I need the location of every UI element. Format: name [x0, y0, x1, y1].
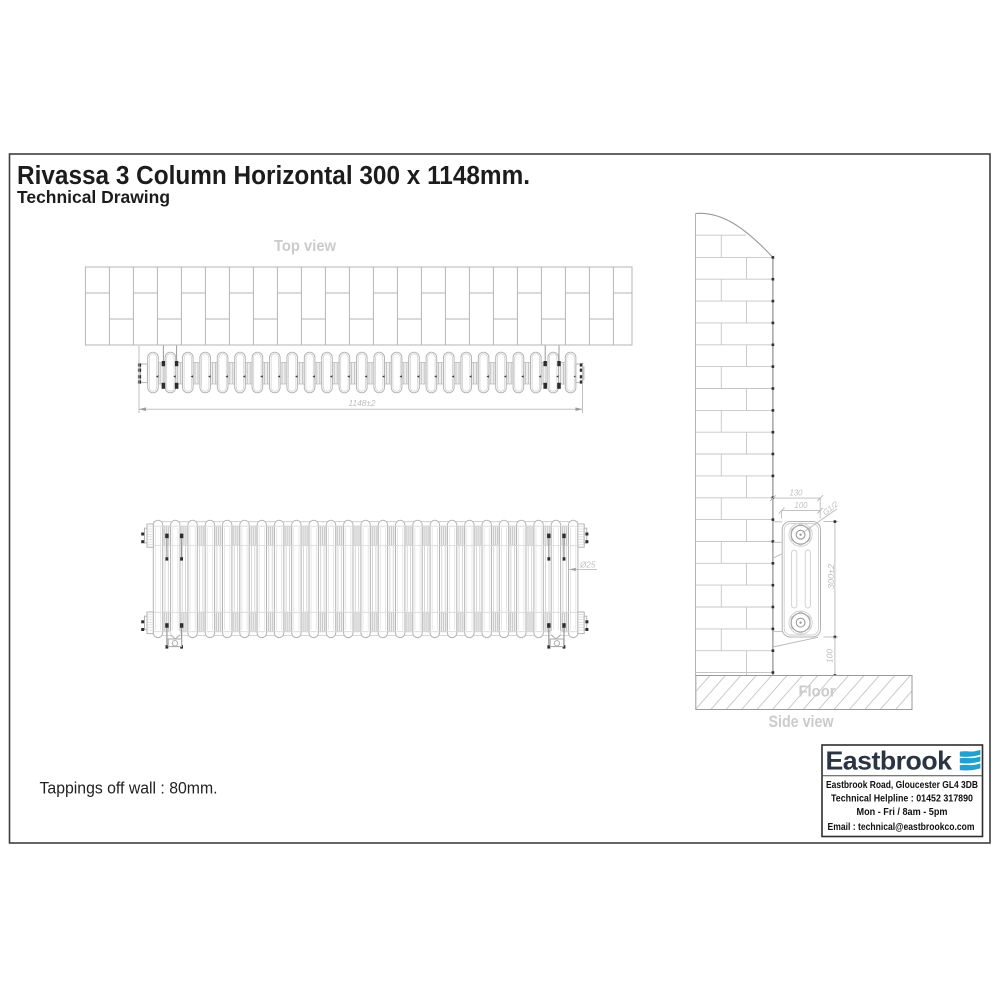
svg-text:300±2: 300±2	[827, 563, 836, 589]
svg-text:Tappings off wall : 80mm.: Tappings off wall : 80mm.	[40, 779, 218, 798]
svg-text:Technical Helpline : 01452 317: Technical Helpline : 01452 317890	[831, 792, 973, 804]
svg-text:100: 100	[795, 501, 809, 510]
svg-text:1148±2: 1148±2	[349, 399, 377, 408]
svg-text:100: 100	[826, 648, 835, 663]
svg-text:Floor: Floor	[799, 684, 836, 701]
svg-text:Ø25: Ø25	[579, 560, 596, 570]
svg-text:Eastbrook: Eastbrook	[826, 746, 953, 776]
svg-text:130: 130	[790, 488, 804, 497]
svg-text:Email : technical@eastbrookco.: Email : technical@eastbrookco.com	[828, 821, 975, 833]
svg-text:Mon - Fri / 8am - 5pm: Mon - Fri / 8am - 5pm	[857, 806, 948, 818]
svg-text:Eastbrook Road, Gloucester GL4: Eastbrook Road, Gloucester GL4 3DB	[826, 779, 978, 791]
svg-text:Side view: Side view	[769, 713, 834, 731]
svg-text:Technical Drawing: Technical Drawing	[17, 187, 170, 207]
svg-text:G1/2: G1/2	[821, 499, 840, 517]
svg-text:Top view: Top view	[274, 238, 337, 255]
svg-text:Rivassa 3 Column Horizontal 30: Rivassa 3 Column Horizontal 300 x 1148mm…	[17, 162, 530, 190]
